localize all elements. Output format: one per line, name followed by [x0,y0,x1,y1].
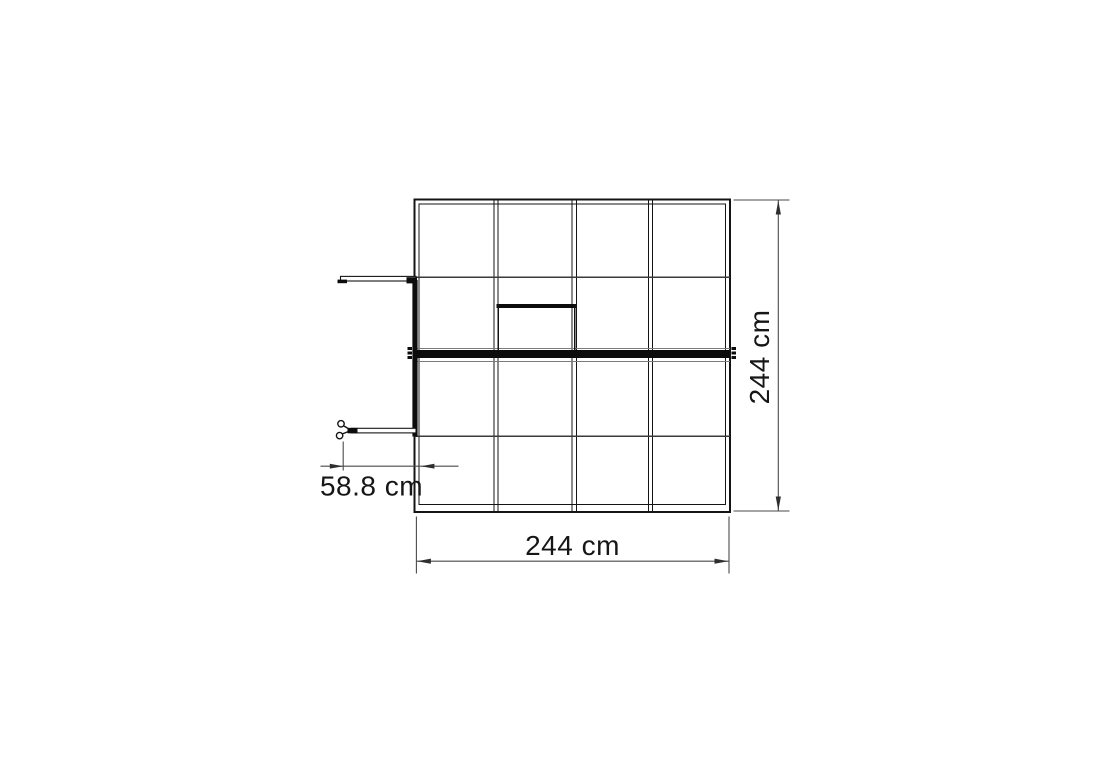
handle-loop-top [338,421,344,427]
arrow-left-icon [417,559,431,564]
vent-top-edge [497,304,577,308]
handle-body [348,428,358,433]
ridge-hinge-dot [408,347,413,350]
door-offset-dimension-label: 58.8 cm [320,471,423,502]
height-dimension-label: 244 cm [744,310,775,405]
arrow-left-icon [421,464,435,469]
door-edge-bar [412,280,417,437]
dimension-width: 244 cm [416,517,729,574]
ridge-bar [415,350,731,358]
greenhouse-plan-drawing: 244 cm 244 cm 58.8 cm [0,0,1100,767]
arrow-right-icon [715,559,729,564]
handle-loop-bottom [336,432,342,438]
door-handle-icon [336,421,357,439]
ridge-hinge-dot [408,351,413,354]
dimension-door-offset: 58.8 cm [320,442,459,502]
door-assembly [336,280,417,439]
diagram-canvas: 244 cm 244 cm 58.8 cm [0,0,1100,767]
arrow-down-icon [776,497,781,511]
arrow-up-icon [776,201,781,215]
vent-side-edges [498,304,574,350]
ridge-hinge-dot [732,347,737,350]
roof-vent-window [497,304,577,350]
ridge-hinge-dot [408,356,413,359]
ridge-hinge-dot [732,351,737,354]
door-panel-open [351,428,416,433]
width-dimension-label: 244 cm [525,530,620,561]
ridge-hinge-dot [732,356,737,359]
window-end-cap [338,280,348,284]
dimension-height: 244 cm [734,200,790,511]
window-panel-open [341,276,417,281]
open-side-window [338,276,418,283]
arrow-right-icon [330,464,344,469]
